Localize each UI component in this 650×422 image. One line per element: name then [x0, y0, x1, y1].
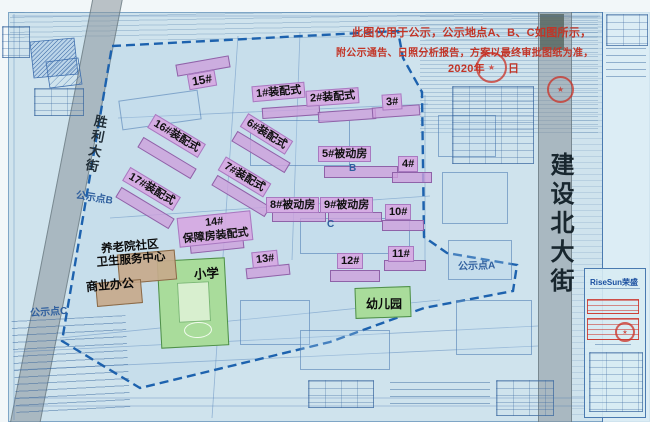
school-courtyard — [177, 281, 211, 323]
building-label-11: 11# — [388, 246, 414, 262]
revision-table — [606, 14, 648, 46]
building-label-12: 12# — [337, 253, 363, 269]
building-label-9: 9#被动房 — [320, 197, 373, 213]
coordinate-table — [34, 88, 84, 116]
notice-point-a-label: 公示点A — [458, 256, 496, 272]
legend-table — [308, 380, 374, 408]
legend-text — [390, 382, 490, 404]
marker-b: B — [349, 163, 356, 174]
building-shape — [328, 212, 382, 222]
building-label-5: 5#被动房 — [318, 146, 371, 162]
building-label-13: 13# — [251, 250, 279, 269]
title-block-table — [589, 352, 643, 412]
economic-indicator-table — [452, 86, 534, 164]
building-footprint — [300, 330, 390, 370]
marker-c: C — [327, 219, 334, 230]
building-shape — [272, 212, 326, 222]
building-label-3: 3# — [381, 93, 402, 110]
building-shape — [392, 172, 432, 183]
notes-text-block — [12, 315, 131, 417]
street-right-label: 建设北大街 — [542, 152, 577, 297]
margin-table — [2, 26, 30, 58]
legend-table — [496, 380, 554, 416]
building-label-10: 10# — [385, 204, 411, 220]
red-seal-stamp: ★ — [615, 322, 635, 342]
hatched-parcel — [46, 58, 82, 88]
building-shape — [330, 270, 380, 282]
notice-text-line1: 此图仅用于公示，公示地点A、B、C如图所示， — [352, 24, 591, 40]
building-shape — [382, 220, 424, 231]
notice-point-c-label: 公示点C — [30, 302, 68, 320]
site-plan-notice-map: 15# 1#装配式 2#装配式 3# 16#装配式 6#装配式 17#装配式 7… — [0, 0, 650, 422]
building-footprint — [456, 300, 532, 355]
notice-text-line2: 附公示通告、日照分析报告，方案以最终审批图纸为准， — [336, 44, 594, 59]
developer-logo: RiseSun荣盛 — [590, 277, 642, 288]
margin-notes — [606, 48, 646, 82]
notice-date-suffix: 日 — [508, 60, 519, 76]
building-label-4: 4# — [398, 156, 418, 172]
title-block-caption — [595, 344, 631, 349]
building-footprint — [442, 172, 508, 224]
red-seal-stamp: ★ — [547, 76, 574, 103]
primary-school-label: 小学 — [194, 267, 220, 282]
building-shape — [324, 166, 398, 178]
kindergarten-label: 幼儿园 — [366, 298, 402, 311]
company-name-line — [590, 288, 640, 294]
building-label-8: 8#被动房 — [266, 197, 319, 213]
red-approval-stamp — [587, 299, 639, 314]
red-seal-stamp: ★ — [476, 52, 507, 83]
